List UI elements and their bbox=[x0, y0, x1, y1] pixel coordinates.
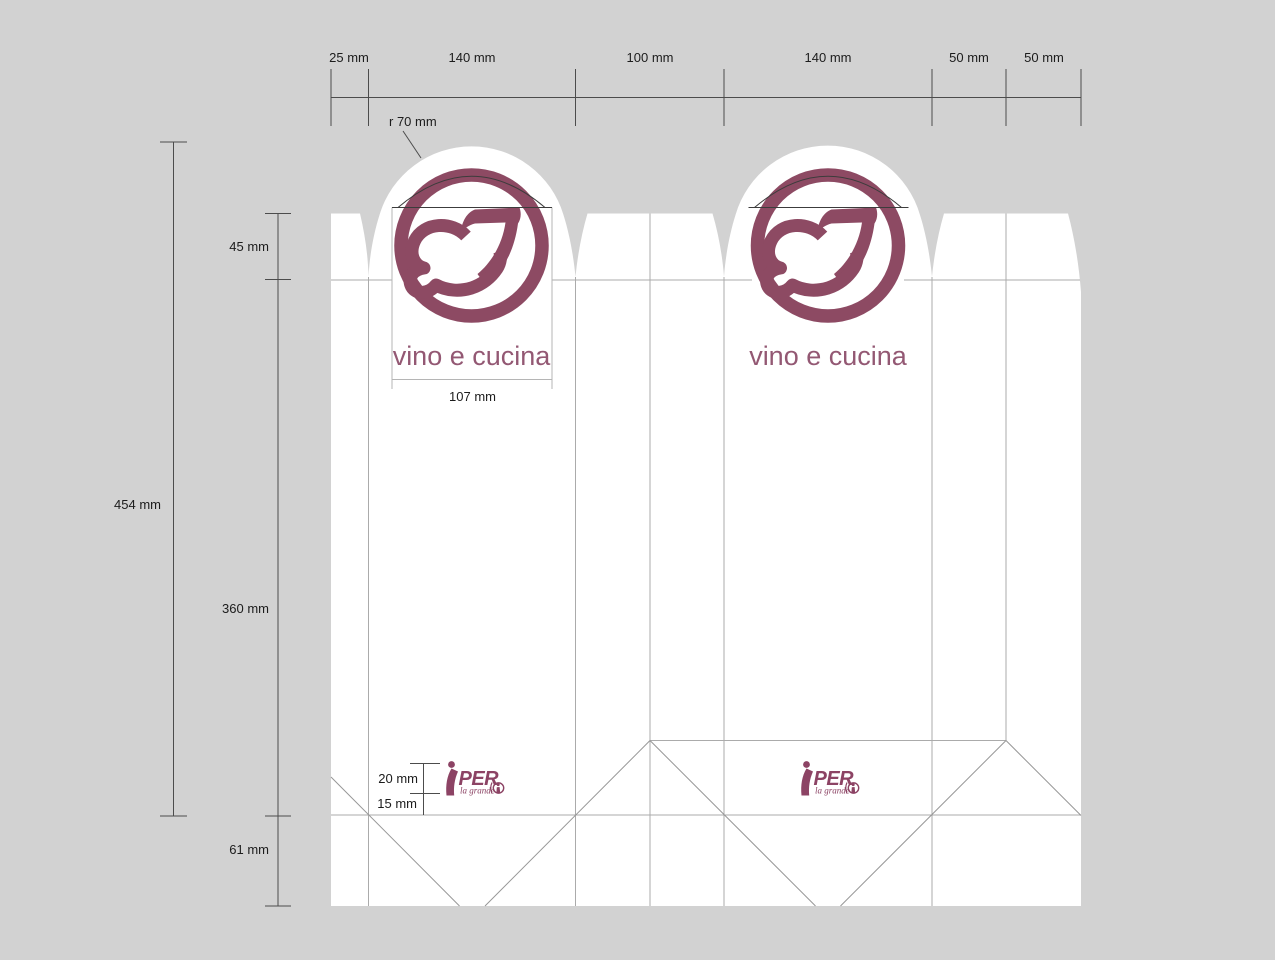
dim-label-tab-radius: r 70 mm bbox=[389, 114, 437, 129]
top-dim-label-50b: 50 mm bbox=[1024, 50, 1064, 65]
top-dim-label-50a: 50 mm bbox=[949, 50, 989, 65]
top-dim-label-100: 100 mm bbox=[627, 50, 674, 65]
top-dim-label-140b: 140 mm bbox=[805, 50, 852, 65]
dim-label-total-height: 454 mm bbox=[114, 497, 161, 512]
dim-label-top-section: 45 mm bbox=[229, 239, 269, 254]
top-dim-label-140a: 140 mm bbox=[449, 50, 496, 65]
dim-label-retail-logo-height: 20 mm bbox=[378, 771, 418, 786]
dim-label-bottom-section: 61 mm bbox=[229, 842, 269, 857]
top-dim-label-25: 25 mm bbox=[329, 50, 369, 65]
dim-label-logo-width: 107 mm bbox=[449, 389, 496, 404]
bag-dieline-shape bbox=[331, 146, 1081, 906]
dim-label-retail-logo-margin: 15 mm bbox=[377, 796, 417, 811]
dieline-drawing-canvas: vino e cucina PER la grande 25 mm 140 mm… bbox=[0, 0, 1275, 960]
dim-label-middle-section: 360 mm bbox=[222, 601, 269, 616]
dieline-svg: vino e cucina PER la grande 25 mm 140 mm… bbox=[0, 0, 1275, 960]
